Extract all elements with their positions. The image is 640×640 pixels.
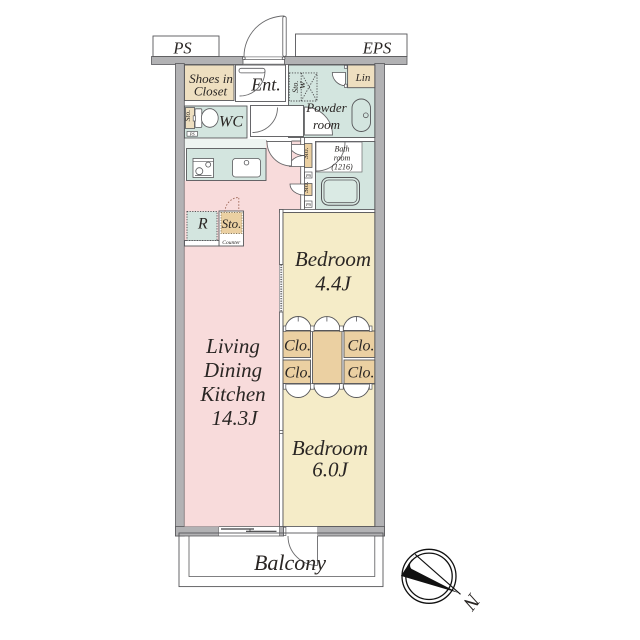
svg-text:Clo.: Clo. — [347, 338, 374, 355]
svg-text:14.3J: 14.3J — [211, 406, 259, 430]
svg-text:Closet: Closet — [194, 83, 228, 98]
svg-text:PS: PS — [305, 173, 312, 178]
svg-text:Dining: Dining — [203, 358, 262, 382]
svg-text:PS: PS — [172, 38, 191, 57]
svg-text:Living: Living — [205, 334, 260, 358]
svg-text:Sto.: Sto. — [222, 216, 242, 231]
svg-text:room: room — [334, 154, 351, 163]
svg-text:Bedroom: Bedroom — [295, 247, 371, 271]
svg-text:Powder: Powder — [305, 100, 347, 115]
svg-text:PS: PS — [305, 202, 312, 207]
svg-text:Kitchen: Kitchen — [199, 382, 265, 406]
svg-text:6.0J: 6.0J — [312, 458, 349, 482]
svg-text:w: w — [296, 81, 308, 89]
svg-text:Lin: Lin — [355, 72, 371, 84]
svg-text:room: room — [313, 117, 340, 132]
svg-text:WC: WC — [219, 114, 243, 131]
svg-text:Clo.: Clo. — [347, 365, 374, 382]
svg-text:Bedroom: Bedroom — [292, 436, 368, 460]
svg-text:Sto.: Sto. — [183, 110, 192, 122]
svg-text:Ent.: Ent. — [250, 75, 281, 95]
svg-text:PS: PS — [189, 131, 196, 136]
svg-text:(1216): (1216) — [331, 163, 353, 172]
svg-text:Balcony: Balcony — [254, 550, 326, 575]
svg-text:Clo.: Clo. — [284, 338, 311, 355]
svg-text:Counter: Counter — [222, 240, 241, 246]
svg-text:R: R — [197, 215, 208, 232]
svg-text:Clo.: Clo. — [284, 365, 311, 382]
svg-text:EPS: EPS — [362, 38, 391, 57]
svg-text:Bath: Bath — [334, 145, 349, 154]
svg-text:N: N — [457, 589, 484, 615]
svg-text:4.4J: 4.4J — [315, 272, 352, 296]
